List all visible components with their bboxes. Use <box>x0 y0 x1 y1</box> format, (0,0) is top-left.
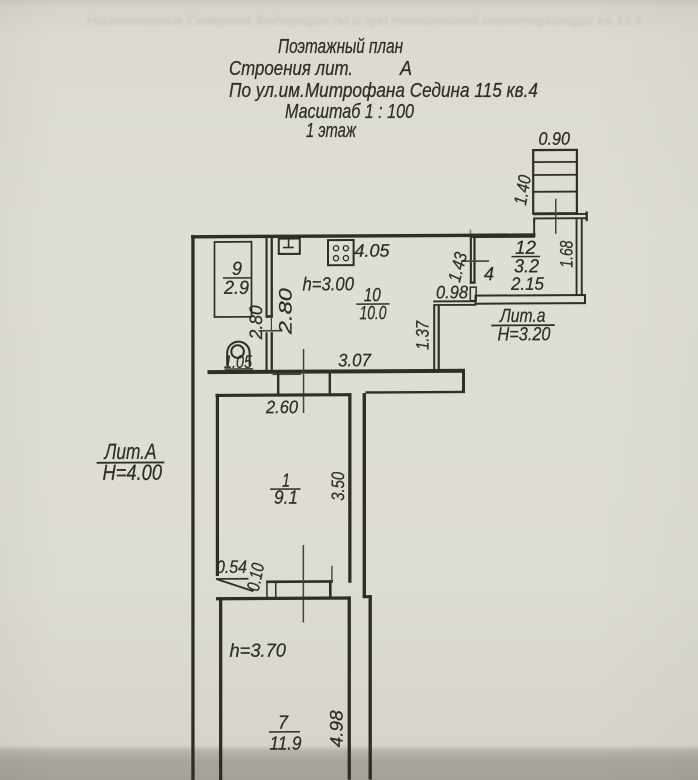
svg-text:Строения лит.: Строения лит. <box>229 58 353 80</box>
svg-text:Поэтажный план: Поэтажный план <box>278 36 403 58</box>
svg-text:9.1: 9.1 <box>274 488 298 509</box>
svg-text:2.9: 2.9 <box>223 278 249 299</box>
svg-text:Н=4.00: Н=4.00 <box>103 460 163 485</box>
svg-text:10.0: 10.0 <box>360 303 387 324</box>
svg-text:h=3.00: h=3.00 <box>303 274 355 295</box>
svg-text:1.68: 1.68 <box>557 241 577 268</box>
svg-text:А: А <box>399 58 412 80</box>
svg-text:0.54: 0.54 <box>216 557 247 577</box>
svg-text:4.98: 4.98 <box>327 710 347 747</box>
svg-text:7: 7 <box>278 713 289 734</box>
svg-text:4: 4 <box>484 264 494 285</box>
svg-text:2.80: 2.80 <box>246 305 266 340</box>
svg-text:11.9: 11.9 <box>270 734 302 755</box>
svg-text:По ул.им.Митрофана Седина 115: По ул.им.Митрофана Седина 115 кв.4 <box>229 80 538 102</box>
svg-text:1 этаж: 1 этаж <box>306 120 357 142</box>
svg-text:4.05: 4.05 <box>355 241 391 261</box>
svg-text:2.60: 2.60 <box>265 397 298 417</box>
svg-text:3.50: 3.50 <box>328 472 348 501</box>
svg-text:9: 9 <box>232 259 242 280</box>
svg-text:0.98: 0.98 <box>436 282 468 302</box>
svg-text:Н=3.20: Н=3.20 <box>498 324 551 345</box>
svg-text:1.37: 1.37 <box>413 320 433 350</box>
svg-text:Наименование Северная Федераци: Наименование Северная Федерация по и при… <box>86 13 643 28</box>
svg-text:2.80: 2.80 <box>276 288 296 335</box>
svg-text:h=3.70: h=3.70 <box>230 641 287 662</box>
svg-text:0.90: 0.90 <box>539 129 571 149</box>
svg-text:2.15: 2.15 <box>510 274 545 294</box>
svg-text:3.07: 3.07 <box>338 350 372 370</box>
